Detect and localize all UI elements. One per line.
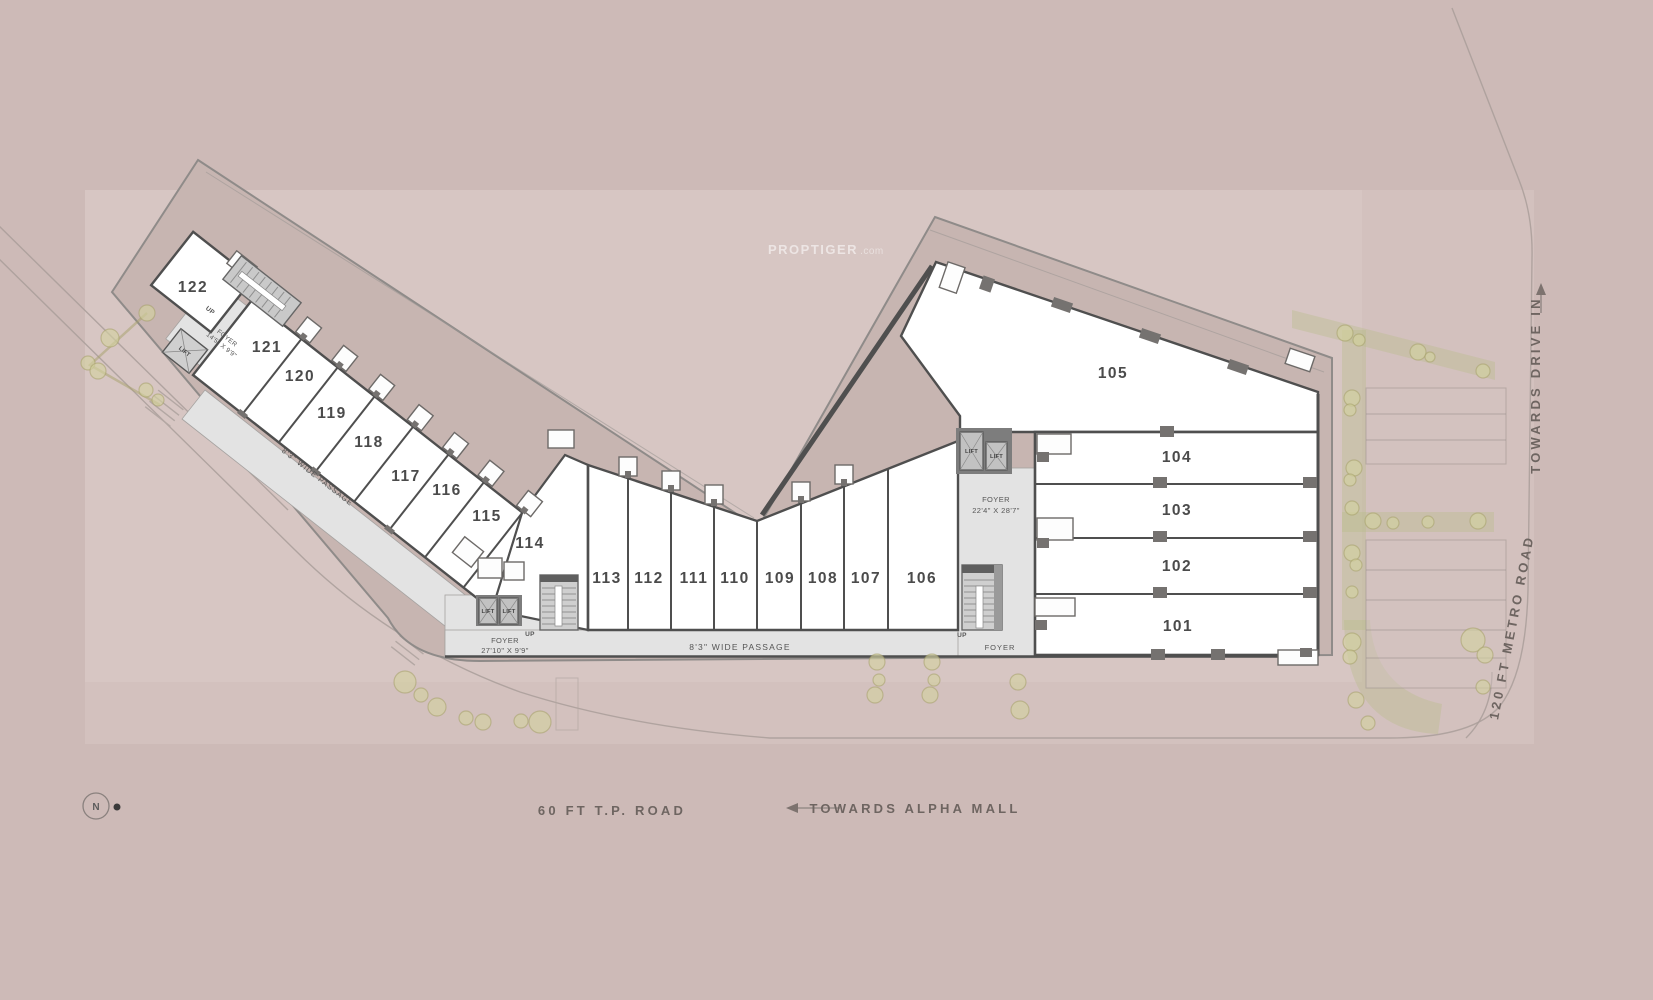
unit-label-115: 115 (472, 508, 502, 525)
north-label: N (92, 802, 99, 813)
unit-label-118: 118 (354, 434, 384, 451)
lift-right-1: LIFT (960, 432, 983, 470)
unit-label-106: 106 (907, 570, 937, 587)
porch-114-top (548, 430, 574, 448)
unit-label-119: 119 (317, 405, 347, 422)
unit-label-104: 104 (1162, 449, 1192, 466)
parking-block-top (1366, 388, 1506, 464)
unit-label-114: 114 (515, 535, 545, 552)
foyer-left-dim: 27'10" X 9'9" (481, 646, 529, 655)
lift-right-1-label: LIFT (965, 449, 978, 455)
foyer-left-label: FOYER (491, 636, 519, 645)
tp-road-label: 60 FT T.P. ROAD (538, 803, 686, 818)
unit-label-116: 116 (432, 482, 462, 499)
alpha-mall-label: TOWARDS ALPHA MALL (810, 801, 1021, 816)
parking-block-bottom (1366, 540, 1506, 688)
lift-left-1: LIFT (479, 598, 497, 624)
unit-label-121: 121 (252, 339, 282, 356)
unit-label-117: 117 (391, 468, 421, 485)
unit-label-101: 101 (1163, 618, 1193, 635)
passage-bottom-label: 8'3" WIDE PASSAGE (689, 642, 790, 652)
floor-plan-svg: LIFT LIFT LIFT (0, 0, 1653, 1000)
foyer-right-dim: 22'4" X 28'7" (972, 506, 1020, 515)
stair-right (962, 565, 1002, 630)
unit-label-113: 113 (592, 570, 622, 587)
up-label-left: UP (525, 631, 535, 638)
tp-road-corridor (85, 682, 1515, 744)
unit-label-108: 108 (808, 570, 838, 587)
foyer-right-label: FOYER (982, 495, 1010, 504)
unit-label-103: 103 (1162, 502, 1192, 519)
unit-label-112: 112 (634, 570, 664, 587)
watermark-brand: PROPTIGER (768, 242, 858, 257)
unit-label-111: 111 (680, 570, 709, 587)
unit-label-102: 102 (1162, 558, 1192, 575)
unit-label-110: 110 (720, 570, 750, 587)
vestibule-left-1 (478, 558, 502, 578)
unit-label-105: 105 (1098, 365, 1128, 382)
unit-label-109: 109 (765, 570, 795, 587)
lift-left-2-label: LIFT (502, 609, 515, 615)
unit-label-120: 120 (285, 368, 315, 385)
foyer-right-bottom-label: FOYER (985, 643, 1016, 652)
north-dot (114, 804, 121, 811)
unit-label-122: 122 (178, 279, 208, 296)
watermark-suffix: .com (860, 246, 884, 257)
vestibule-left-2 (504, 562, 524, 580)
lift-left-1-label: LIFT (481, 609, 494, 615)
stair-left (540, 575, 578, 630)
lift-right-2-label: LIFT (990, 454, 1003, 460)
unit-label-107: 107 (851, 570, 881, 587)
up-label-right: UP (957, 632, 967, 639)
drive-in-label: TOWARDS DRIVE IN (1528, 296, 1543, 473)
floor-plan-page: LIFT LIFT LIFT (0, 0, 1653, 1000)
lift-right-2: LIFT (986, 442, 1007, 470)
lift-left-2: LIFT (500, 598, 518, 624)
